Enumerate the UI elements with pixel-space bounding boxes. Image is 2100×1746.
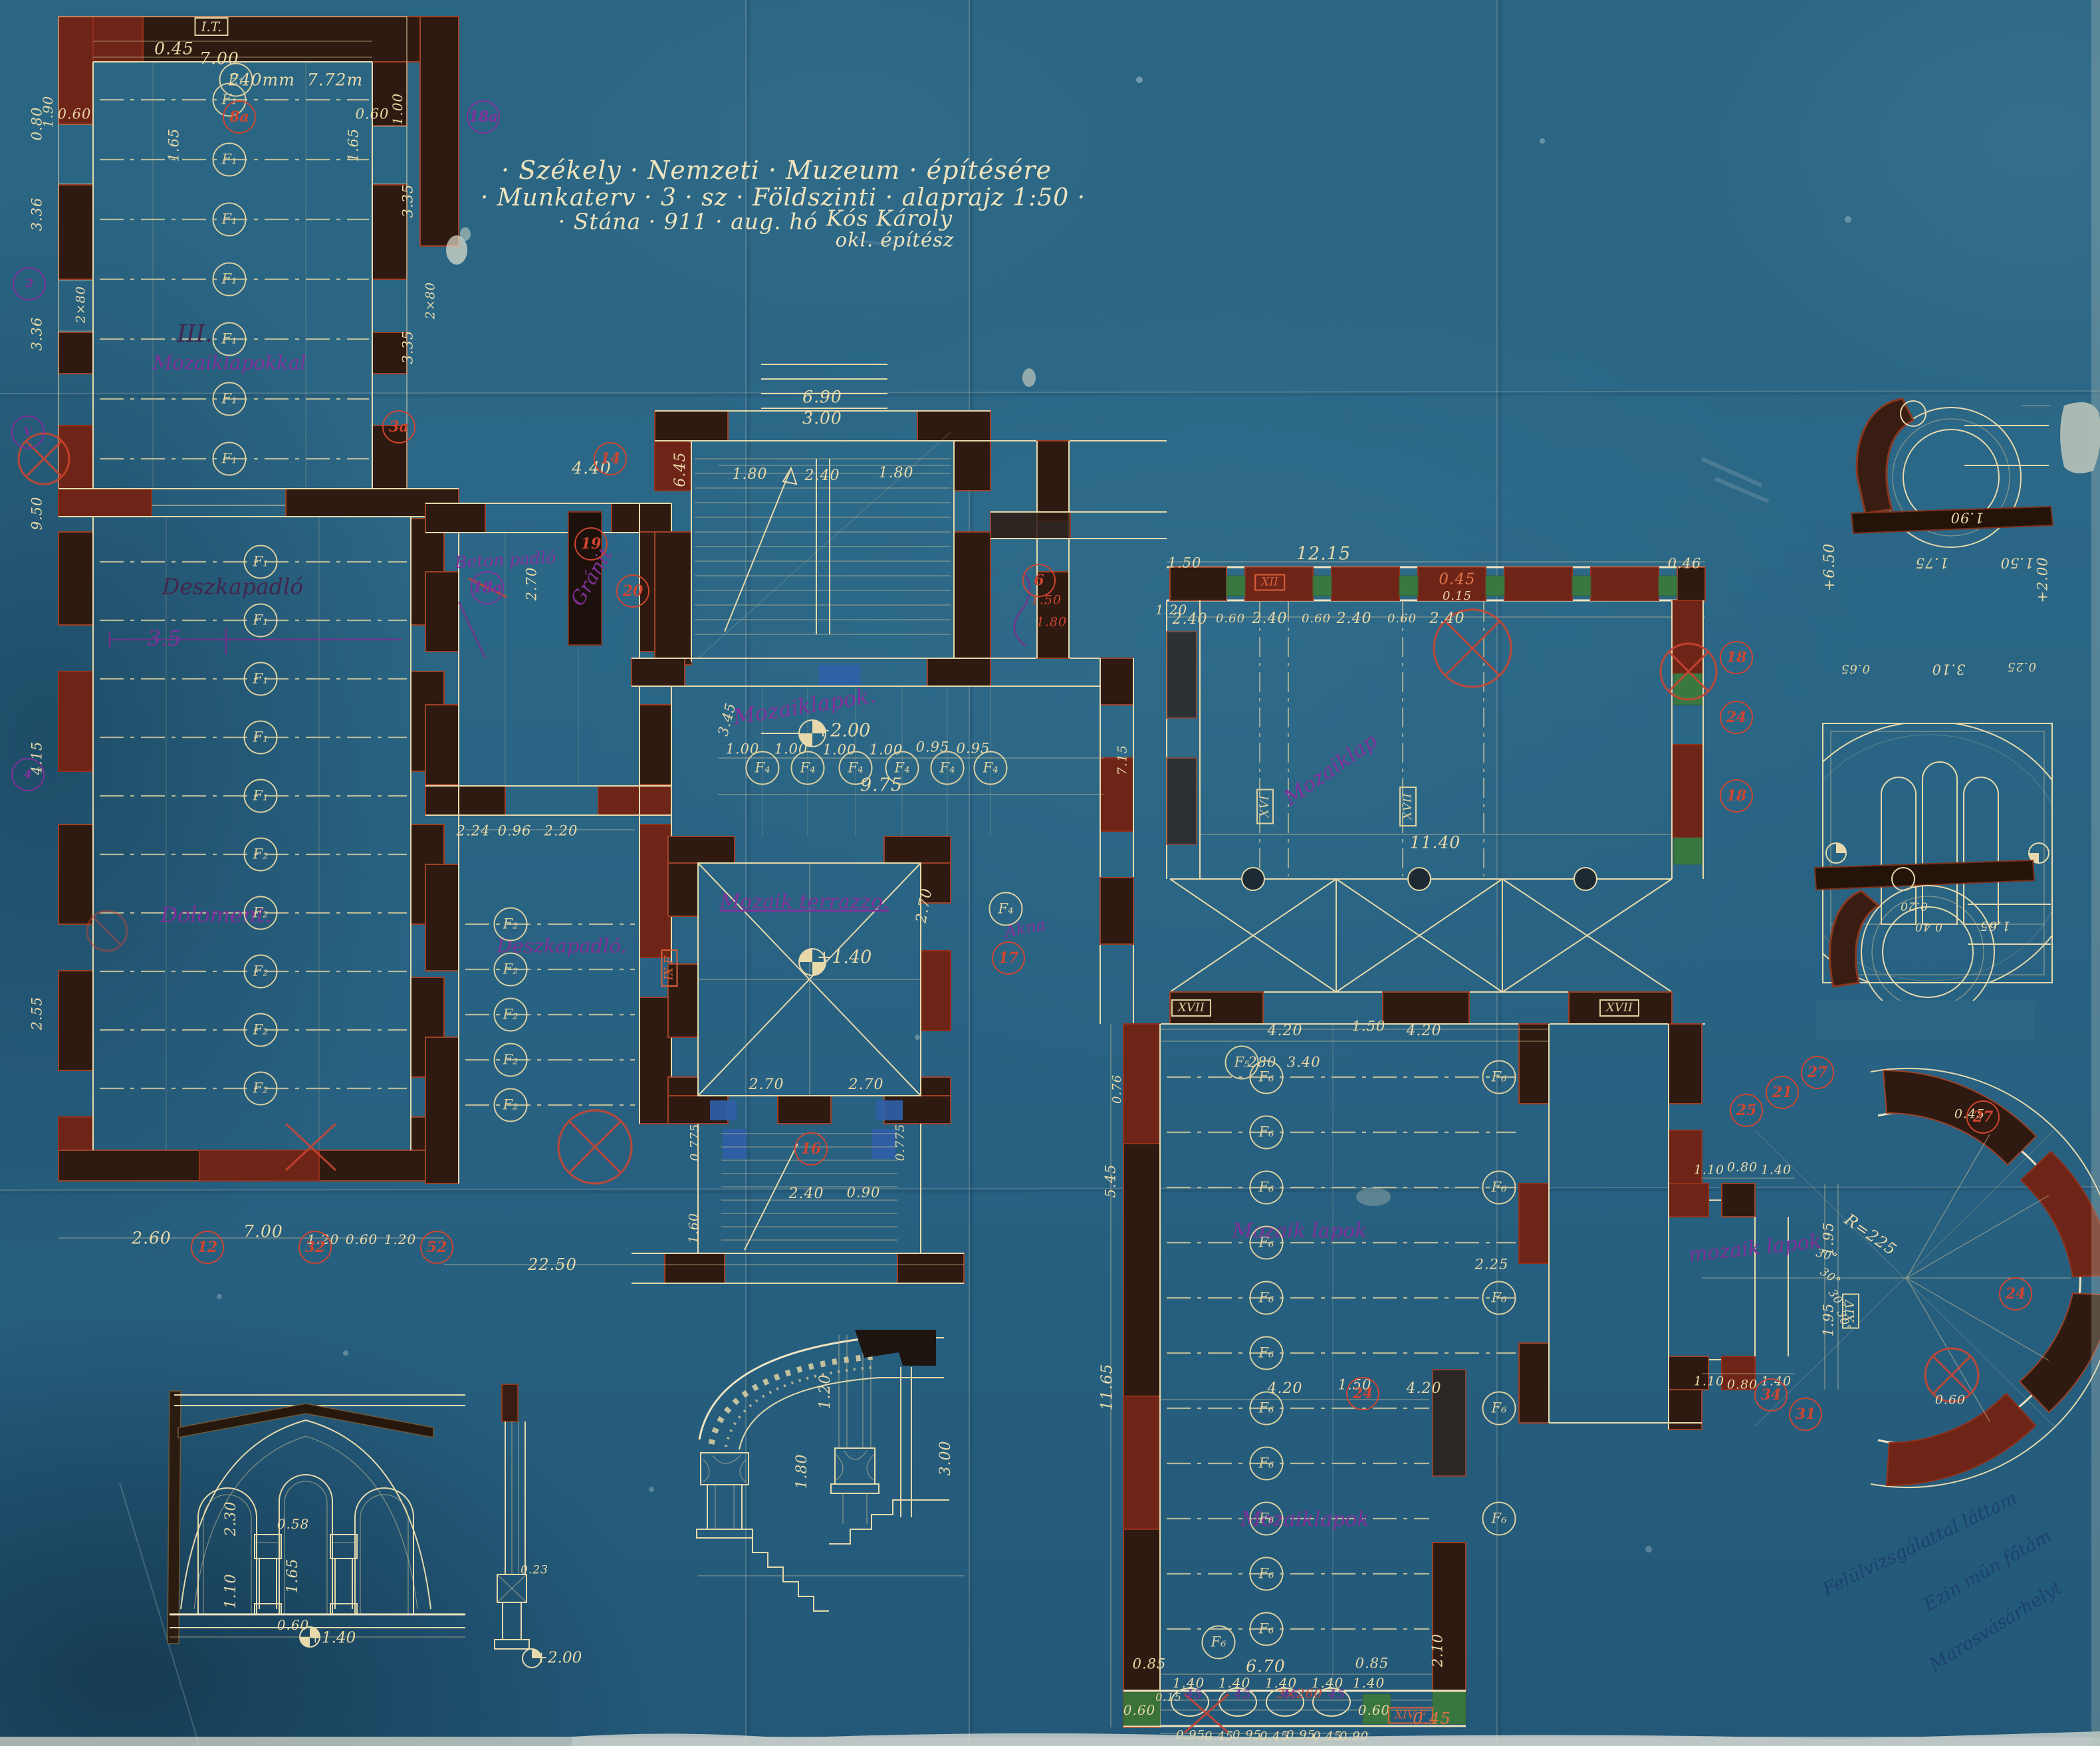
dimension-label: 7.00	[243, 1223, 283, 1240]
dimension-label: 0.85	[1355, 1657, 1389, 1671]
dimension-label: 0.45	[154, 41, 194, 57]
revision-mark: 19	[574, 527, 608, 561]
dimension-label: 45	[1282, 1689, 1299, 1701]
dimension-label: 2.40	[1173, 612, 1208, 627]
dimension-label: 0.95	[1286, 1729, 1316, 1741]
beam-mark: F₂	[244, 1013, 278, 1047]
revision-mark: 18a	[471, 571, 504, 604]
dimension-label: 4.20	[1268, 1024, 1303, 1039]
beam-mark: F₂	[494, 1043, 528, 1077]
dimension-label: 2.40	[805, 469, 840, 483]
beam-mark: F₁	[244, 662, 278, 696]
revision-mark: 34	[1754, 1378, 1788, 1412]
dimension-label: 1.65	[168, 128, 181, 162]
beam-mark: F₆	[1250, 1226, 1284, 1260]
beam-mark: F₆	[1250, 1336, 1284, 1370]
dimension-label: 0.23	[521, 1565, 548, 1576]
revision-mark: 17	[992, 941, 1025, 975]
title-text: · Munkaterv · 3 · sz · Földszinti · alap…	[481, 186, 1086, 210]
revision-mark: 32	[298, 1231, 332, 1264]
revision-mark: 20	[616, 574, 649, 608]
dimension-label: 0.60	[1387, 613, 1417, 625]
dimension-label: 1.40	[1353, 1676, 1385, 1689]
room-label: Mozaik terrazzo.	[720, 892, 889, 912]
room-label: Beton padló	[454, 549, 556, 571]
dimension-label: 1.95	[1822, 1303, 1836, 1337]
beam-mark: F₄	[839, 751, 873, 785]
fold-creases	[0, 0, 2100, 1746]
revision-mark: 24	[1346, 1377, 1379, 1410]
revision-mark: 31	[1789, 1398, 1822, 1431]
dimension-label: 1.50	[1168, 557, 1202, 570]
dimension-label: 0.96	[498, 824, 532, 838]
room-label: III.	[177, 322, 213, 346]
dimension-label: 0.80	[1727, 1379, 1758, 1392]
dimension-label: 1.80	[879, 466, 914, 481]
level-mark: +2.00	[535, 1651, 582, 1666]
revision-mark: 25	[1730, 1094, 1763, 1127]
dimension-label: 1.50	[2000, 556, 2034, 570]
girder-label: XII	[1254, 574, 1285, 591]
revision-mark: 24	[1999, 1277, 2032, 1310]
dimension-label: 0.60	[356, 108, 390, 122]
detail-window-elevation	[1780, 721, 2079, 994]
beam-mark: F₄	[974, 751, 1008, 785]
dimension-label: 3.35	[402, 184, 415, 218]
detail-ornamental-arch	[697, 1330, 964, 1611]
dimension-label: 11.40	[1410, 834, 1461, 851]
dimension-label: 0.46	[1668, 557, 1702, 571]
dimension-label: 2×80	[75, 286, 88, 323]
beam-mark: F₂	[494, 953, 528, 987]
beam-mark: F₄	[791, 751, 825, 785]
dimension-label: 6.45	[673, 452, 688, 487]
beam-mark: F₆	[1482, 1060, 1516, 1094]
beam-mark: F₄	[931, 751, 965, 785]
girder-label: XVII	[1599, 999, 1639, 1017]
beam-mark: F₆	[1482, 1392, 1516, 1426]
dimension-label: +6.50	[1823, 543, 1837, 591]
dimension-label: 1.90	[1950, 511, 1984, 525]
room-label: 3.5	[148, 628, 181, 649]
revision-mark: 4	[11, 758, 45, 791]
dimension-label: 45	[1234, 1689, 1251, 1701]
dimension-label: 2.25	[1475, 1258, 1509, 1272]
beam-mark: F₂	[244, 896, 278, 930]
dimension-label: 0.60	[277, 1618, 310, 1632]
dimension-label: 0.45	[1313, 1731, 1342, 1743]
light-well	[668, 836, 951, 1124]
dimension-label: 2.24	[457, 824, 491, 838]
dimension-label: 2.20	[544, 824, 578, 838]
beam-mark: F₁	[213, 263, 247, 297]
revision-mark: 12	[191, 1231, 224, 1264]
dimension-label: 3.00	[939, 1441, 953, 1476]
dimension-label: 3.00	[802, 410, 842, 427]
dimension-label: 0.60	[1358, 1703, 1391, 1717]
level-mark: +1.40	[309, 1631, 356, 1646]
beam-mark: F₆	[1482, 1171, 1516, 1205]
revision-mark: 24	[1720, 701, 1753, 734]
dimension-label: 2×80	[425, 282, 437, 319]
dimension-label: 2.60	[132, 1230, 172, 1247]
dimension-label: 0.15	[1155, 1692, 1182, 1703]
dimension-label: 1.80	[1036, 616, 1067, 629]
dimension-label: 11.65	[1100, 1364, 1115, 1411]
dimension-label: 3.10	[1932, 662, 1966, 676]
dimension-label: 0.45	[1260, 1731, 1289, 1743]
title-text: Kós Károly	[826, 207, 953, 229]
dimension-label: 1.50	[1352, 1020, 1386, 1034]
room-label: Mozaiklapokkal	[153, 354, 306, 373]
dimension-label: 0.775	[689, 1124, 701, 1162]
dimension-label: 0.90	[1340, 1731, 1369, 1743]
beam-mark: F₂	[494, 1088, 528, 1122]
dimension-label: 45	[1328, 1689, 1345, 1701]
beam-mark: F₆	[1250, 1557, 1284, 1591]
dimension-label: 0.45	[1439, 572, 1475, 588]
dimension-label: 0.15	[1443, 590, 1472, 602]
dimension-label: 2.40	[789, 1187, 824, 1201]
beam-mark: F₆	[1250, 1171, 1284, 1205]
dimension-label: 7.15	[1117, 745, 1129, 775]
dimension-label: 0.40	[1915, 921, 1942, 932]
dimension-label: 2.10	[1431, 1634, 1445, 1668]
dimension-label: 1.75	[1915, 556, 1949, 570]
revision-mark: 27	[1966, 1100, 2000, 1134]
revision-mark: 27	[1801, 1056, 1834, 1089]
dimension-label: 12.15	[1296, 545, 1351, 563]
title-text: okl. építész	[836, 231, 955, 250]
beam-mark: F₆	[1250, 1612, 1284, 1646]
dimension-label: 3.36	[31, 197, 45, 231]
blueprint-drawing	[0, 0, 2100, 1746]
revision-mark: 3a	[382, 410, 415, 443]
girder-label: XVII	[1171, 999, 1211, 1017]
detail-horseshoe-bottom	[1815, 860, 2051, 1041]
beam-mark: F₁	[213, 442, 247, 476]
dimension-label: 9.50	[31, 497, 45, 531]
dimension-label: 22.50	[528, 1257, 577, 1273]
paper-stains	[0, 0, 2100, 1746]
beam-mark: F₄	[885, 751, 919, 785]
beam-mark: F₆	[1250, 1116, 1284, 1150]
dimension-label: 3.36	[31, 317, 45, 351]
dimension-label: 0.95	[1232, 1729, 1262, 1741]
revision-mark: 18	[1720, 779, 1753, 812]
dimension-label: 0.60	[58, 108, 92, 122]
blueprint-sheet: · Székely · Nemzeti · Muzeum · építésére…	[0, 0, 2100, 1746]
dimension-label: +2.00	[2036, 557, 2050, 602]
dimension-label: 0.775	[895, 1124, 907, 1162]
dimension-label: 2.30	[224, 1501, 239, 1537]
dimension-label: 0.90	[847, 1186, 881, 1200]
revision-mark: 21	[1766, 1076, 1799, 1109]
beam-mark: F₆	[1202, 1626, 1236, 1660]
dimension-label: 1.20	[818, 1374, 833, 1410]
dimension-label: 0.60	[1935, 1394, 1966, 1407]
girder-label: IX F	[661, 949, 678, 987]
beam-mark: F₂	[244, 955, 278, 989]
dimension-label: 6.70	[1246, 1658, 1286, 1675]
revision-mark: 18	[1720, 641, 1753, 674]
dimension-label: 1.60	[688, 1213, 701, 1243]
dimension-label: 1.10	[1694, 1164, 1724, 1177]
beam-mark: F₆	[1250, 1060, 1284, 1094]
revision-mark: V	[11, 416, 45, 449]
dimension-label: 6.90	[802, 389, 842, 406]
beam-mark: F₂	[494, 998, 528, 1032]
beam-mark: F₆	[1482, 1502, 1516, 1536]
beam-mark: F₁	[213, 143, 247, 177]
dimension-label: 0.60	[346, 1233, 378, 1246]
revision-mark: 14	[594, 442, 627, 475]
dimension-label: 0.60	[1216, 613, 1245, 625]
dimension-label: 1.20	[384, 1233, 417, 1246]
dimension-label: 0.45	[1205, 1731, 1234, 1743]
beam-mark: F₄	[746, 751, 780, 785]
beam-mark: F₆	[1482, 1281, 1516, 1315]
dimension-label: 1.80	[795, 1454, 810, 1489]
dimension-label: 4.20	[1407, 1024, 1442, 1039]
dimension-label: 0.20	[1900, 900, 1928, 912]
beam-mark: F₆	[1250, 1502, 1284, 1536]
title-text: · Székely · Nemzeti · Muzeum · építésére	[501, 158, 1052, 183]
beam-mark: F₂	[494, 908, 528, 941]
dimension-label: 1.80	[733, 467, 768, 482]
dimension-label: 1.10	[1694, 1376, 1724, 1388]
beam-mark: F₁	[213, 322, 247, 356]
dimension-label: 1.00	[391, 93, 404, 126]
beam-mark: F₁	[244, 721, 278, 755]
dimension-label: 1.10	[224, 1574, 239, 1609]
girder-label: XVII	[1399, 787, 1417, 826]
dimension-label: 0.65	[1841, 662, 1870, 674]
dimension-label: 2.40	[1252, 612, 1288, 626]
dimension-label: 45	[1185, 1689, 1203, 1701]
revision-mark: 6	[1022, 564, 1056, 597]
dimension-label: 2.40	[1430, 612, 1465, 626]
beam-mark: F₁	[244, 779, 278, 813]
dimension-label: 2.55	[31, 997, 45, 1031]
dimension-label: 1.65	[1980, 920, 2010, 932]
dimension-label: 0.25	[2007, 660, 2036, 672]
dimension-label: 2.40	[1337, 612, 1372, 626]
beam-mark: F₁	[244, 604, 278, 638]
dimension-label: 1.40	[1761, 1164, 1792, 1177]
dimension-label: 0.76	[1111, 1074, 1123, 1104]
dimension-label: 1.65	[347, 128, 361, 162]
dimension-label: 4.20	[1407, 1382, 1442, 1396]
dimension-label: 1.65	[286, 1559, 300, 1594]
girder-label: XIV F	[1388, 1707, 1433, 1724]
dimension-label: 2.70	[525, 567, 539, 601]
girder-label: XVI	[1256, 789, 1274, 824]
beam-mark: F₁	[213, 382, 247, 416]
dimension-label: 2.70	[849, 1078, 884, 1092]
dimension-label: 0.58	[277, 1517, 310, 1531]
girder-label: XIV	[1842, 1294, 1859, 1329]
revision-mark: 8a	[223, 100, 256, 134]
dimension-label: 0.85	[1133, 1658, 1167, 1672]
dimension-label: 0.95	[1176, 1729, 1205, 1741]
bottom-right-room	[1111, 1024, 1549, 1733]
detail-arcade-section	[168, 1391, 465, 1647]
beam-mark: F₂	[244, 1072, 278, 1106]
dimension-label: 0.60	[1123, 1703, 1156, 1717]
dimension-label: 5.45	[1104, 1164, 1118, 1198]
revision-mark: 16	[794, 1132, 828, 1166]
beam-mark: F₆	[1250, 1392, 1284, 1426]
revision-mark: 52	[420, 1231, 453, 1264]
dimension-label: 0.60	[1302, 613, 1331, 625]
beam-mark: F₄	[989, 892, 1023, 926]
dimension-label: 0.80	[31, 107, 45, 141]
beam-mark: F₆	[1250, 1281, 1284, 1315]
dimension-label: 2.70	[749, 1078, 784, 1092]
room-label: Deszkapadló	[162, 576, 303, 598]
detail-pier-section	[495, 1384, 541, 1668]
dimension-label: 1.95	[1822, 1222, 1836, 1256]
title-text: · Stána · 911 · aug. hó	[558, 211, 818, 233]
beam-mark: F₂	[244, 838, 278, 872]
level-mark: +2.00	[816, 722, 871, 740]
beam-mark: F₆	[1250, 1447, 1284, 1481]
girder-label: I.T.	[194, 17, 228, 36]
dimension-label: 3.35	[402, 330, 415, 364]
lower-stairs	[444, 1124, 964, 1283]
revision-mark: 18a	[467, 100, 500, 134]
dimension-label: 0.80	[1727, 1162, 1758, 1174]
level-mark: +1.40	[817, 949, 872, 967]
beam-mark: F₁	[213, 203, 247, 237]
revision-mark: 2	[13, 267, 46, 301]
beam-mark: F₁	[244, 545, 278, 579]
